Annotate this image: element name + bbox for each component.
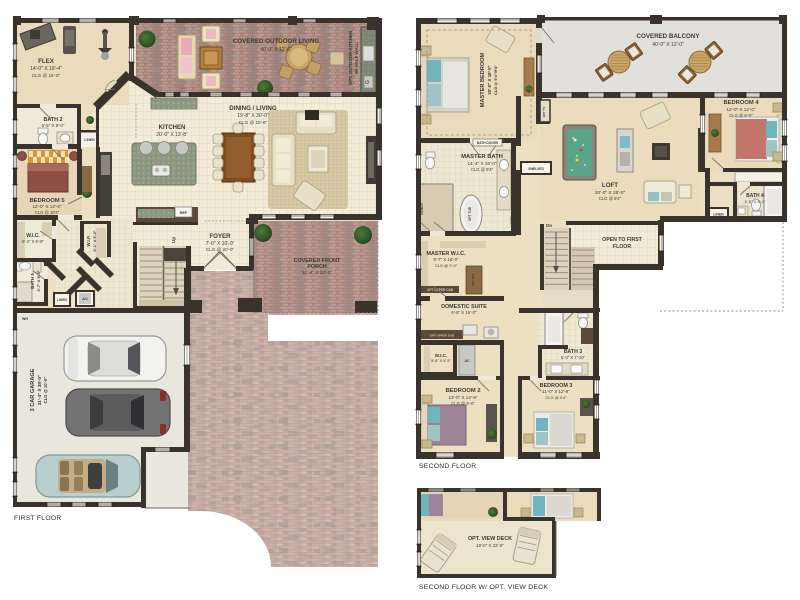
svg-text:OPT TUB: OPT TUB xyxy=(468,206,472,221)
svg-text:LINEN: LINEN xyxy=(84,138,95,142)
svg-text:REF: REF xyxy=(180,211,188,215)
svg-text:OPT. VIEW DECK: OPT. VIEW DECK xyxy=(468,536,512,542)
svg-text:12'-0" X 12'-8": 12'-0" X 12'-8" xyxy=(32,204,61,209)
svg-text:SECOND FLOOR: SECOND FLOOR xyxy=(419,463,476,470)
svg-text:5'-0" X 7'-10": 5'-0" X 7'-10" xyxy=(561,355,586,360)
svg-text:FLOOR: FLOOR xyxy=(613,244,631,250)
svg-text:CLG @ 10'-0": CLG @ 10'-0" xyxy=(43,377,48,404)
svg-text:BATH 5: BATH 5 xyxy=(30,273,35,289)
svg-text:OPT. OUTDOOR KITCHEN: OPT. OUTDOOR KITCHEN xyxy=(348,31,353,85)
svg-text:5'-3" X 5'-8": 5'-3" X 5'-8" xyxy=(22,239,44,244)
svg-text:OPT W/D: OPT W/D xyxy=(471,273,475,287)
svg-text:14'-4" X 16'-0": 14'-4" X 16'-0" xyxy=(467,161,496,166)
svg-text:LINEN: LINEN xyxy=(713,213,724,217)
svg-text:W.I.C.: W.I.C. xyxy=(435,353,448,358)
svg-text:CLG @ 8'-0": CLG @ 8'-0" xyxy=(729,113,753,118)
svg-text:6'-6" X 16'-0": 6'-6" X 16'-0" xyxy=(451,310,477,315)
svg-text:CLG @ 20'-0": CLG @ 20'-0" xyxy=(206,247,235,252)
svg-text:BATH DOORS: BATH DOORS xyxy=(477,141,498,145)
svg-text:5'-7" X 9'-5": 5'-7" X 9'-5" xyxy=(37,270,41,291)
svg-text:LINEN: LINEN xyxy=(510,216,514,226)
svg-text:PORCH: PORCH xyxy=(307,264,327,270)
svg-text:CLG @ 9'4": CLG @ 9'4" xyxy=(545,395,567,400)
svg-text:CLG @ 16'-0": CLG @ 16'-0" xyxy=(32,73,61,78)
svg-text:DINING / LIVING: DINING / LIVING xyxy=(229,105,277,112)
svg-text:6'-1" X 5'-0": 6'-1" X 5'-0" xyxy=(93,230,97,251)
svg-text:OPT UPPER CAB: OPT UPPER CAB xyxy=(430,334,456,338)
svg-text:OPT UPPER CAB: OPT UPPER CAB xyxy=(427,288,454,292)
svg-text:A/C: A/C xyxy=(82,297,88,301)
svg-text:9'-7" X 16'-0": 9'-7" X 16'-0" xyxy=(433,257,459,262)
svg-text:CLG @ 10'-8": CLG @ 10'-8" xyxy=(239,120,268,125)
svg-text:5'-5" X 8'-0": 5'-5" X 8'-0" xyxy=(745,199,766,204)
svg-text:20'-0" X 13'-8": 20'-0" X 13'-8" xyxy=(156,132,188,138)
svg-text:6'-5" X 9'-0": 6'-5" X 9'-0" xyxy=(42,123,65,128)
svg-text:BEDROOM 2: BEDROOM 2 xyxy=(445,388,480,394)
svg-text:CLG @ 9'4"/9'4": CLG @ 9'4"/9'4" xyxy=(493,65,498,95)
svg-text:KITCHEN: KITCHEN xyxy=(159,125,186,131)
svg-text:FLEX: FLEX xyxy=(38,58,55,65)
svg-text:W/ HALF WALL: W/ HALF WALL xyxy=(354,42,359,74)
svg-text:SECOND FLOOR W/ OPT. VIEW DECK: SECOND FLOOR W/ OPT. VIEW DECK xyxy=(419,584,548,591)
svg-text:WH: WH xyxy=(22,317,28,321)
svg-text:19'-8" X 30'-0": 19'-8" X 30'-0" xyxy=(237,113,269,119)
svg-text:40'-0" X 12'-0": 40'-0" X 12'-0" xyxy=(652,42,684,48)
svg-text:20'-0" X 18'-0": 20'-0" X 18'-0" xyxy=(487,65,492,94)
svg-text:14'-0" X 18'-4": 14'-0" X 18'-4" xyxy=(30,66,62,72)
svg-text:OPEN TO FIRST: OPEN TO FIRST xyxy=(602,237,643,243)
svg-text:CLG @ 9'4": CLG @ 9'4" xyxy=(599,196,622,201)
svg-text:W.I.P.: W.I.P. xyxy=(86,235,91,246)
svg-text:CLG @ 9'4": CLG @ 9'4" xyxy=(471,167,494,172)
svg-text:FIRST FLOOR: FIRST FLOOR xyxy=(14,515,62,522)
svg-text:OPT TV: OPT TV xyxy=(542,107,546,118)
svg-text:40'-0" X 12'-0": 40'-0" X 12'-0" xyxy=(260,47,292,53)
svg-text:COVERED BALCONY: COVERED BALCONY xyxy=(637,33,701,40)
svg-text:CLG @ 10'4": CLG @ 10'4" xyxy=(35,210,60,215)
svg-text:FOYER: FOYER xyxy=(209,233,231,240)
svg-text:5'-8" X 5'-5": 5'-8" X 5'-5" xyxy=(431,359,451,363)
svg-text:G: G xyxy=(365,80,371,84)
svg-text:MASTER BEDROOM: MASTER BEDROOM xyxy=(480,52,486,107)
svg-text:CLG @ 9'-0": CLG @ 9'-0" xyxy=(435,263,458,268)
svg-text:11'-0" X 12'-9": 11'-0" X 12'-9" xyxy=(542,389,570,394)
svg-text:AC: AC xyxy=(465,359,470,363)
svg-text:BEDROOM 4: BEDROOM 4 xyxy=(723,100,759,106)
svg-text:MASTER BATH: MASTER BATH xyxy=(461,154,503,160)
svg-text:10'-0" X 22'-0": 10'-0" X 22'-0" xyxy=(476,543,504,548)
svg-text:LOFT: LOFT xyxy=(602,182,618,189)
svg-text:Dn: Dn xyxy=(546,223,552,228)
svg-text:11'-6" X 20'-0": 11'-6" X 20'-0" xyxy=(302,270,332,276)
svg-text:31'-4" X 28'-0": 31'-4" X 28'-0" xyxy=(37,375,42,406)
svg-text:3 CAR GARAGE: 3 CAR GARAGE xyxy=(30,368,36,411)
svg-text:SHELVES: SHELVES xyxy=(528,167,544,171)
svg-text:Up: Up xyxy=(171,237,176,243)
svg-text:12'-0" X 12'-0": 12'-0" X 12'-0" xyxy=(726,107,755,112)
svg-text:COVERED OUTDOOR LIVING: COVERED OUTDOOR LIVING xyxy=(233,38,319,45)
svg-text:13'-0" X 12'-9": 13'-0" X 12'-9" xyxy=(448,395,477,400)
svg-text:CLG @ 9'-0": CLG @ 9'-0" xyxy=(451,401,475,406)
svg-text:LINEN: LINEN xyxy=(57,298,67,302)
